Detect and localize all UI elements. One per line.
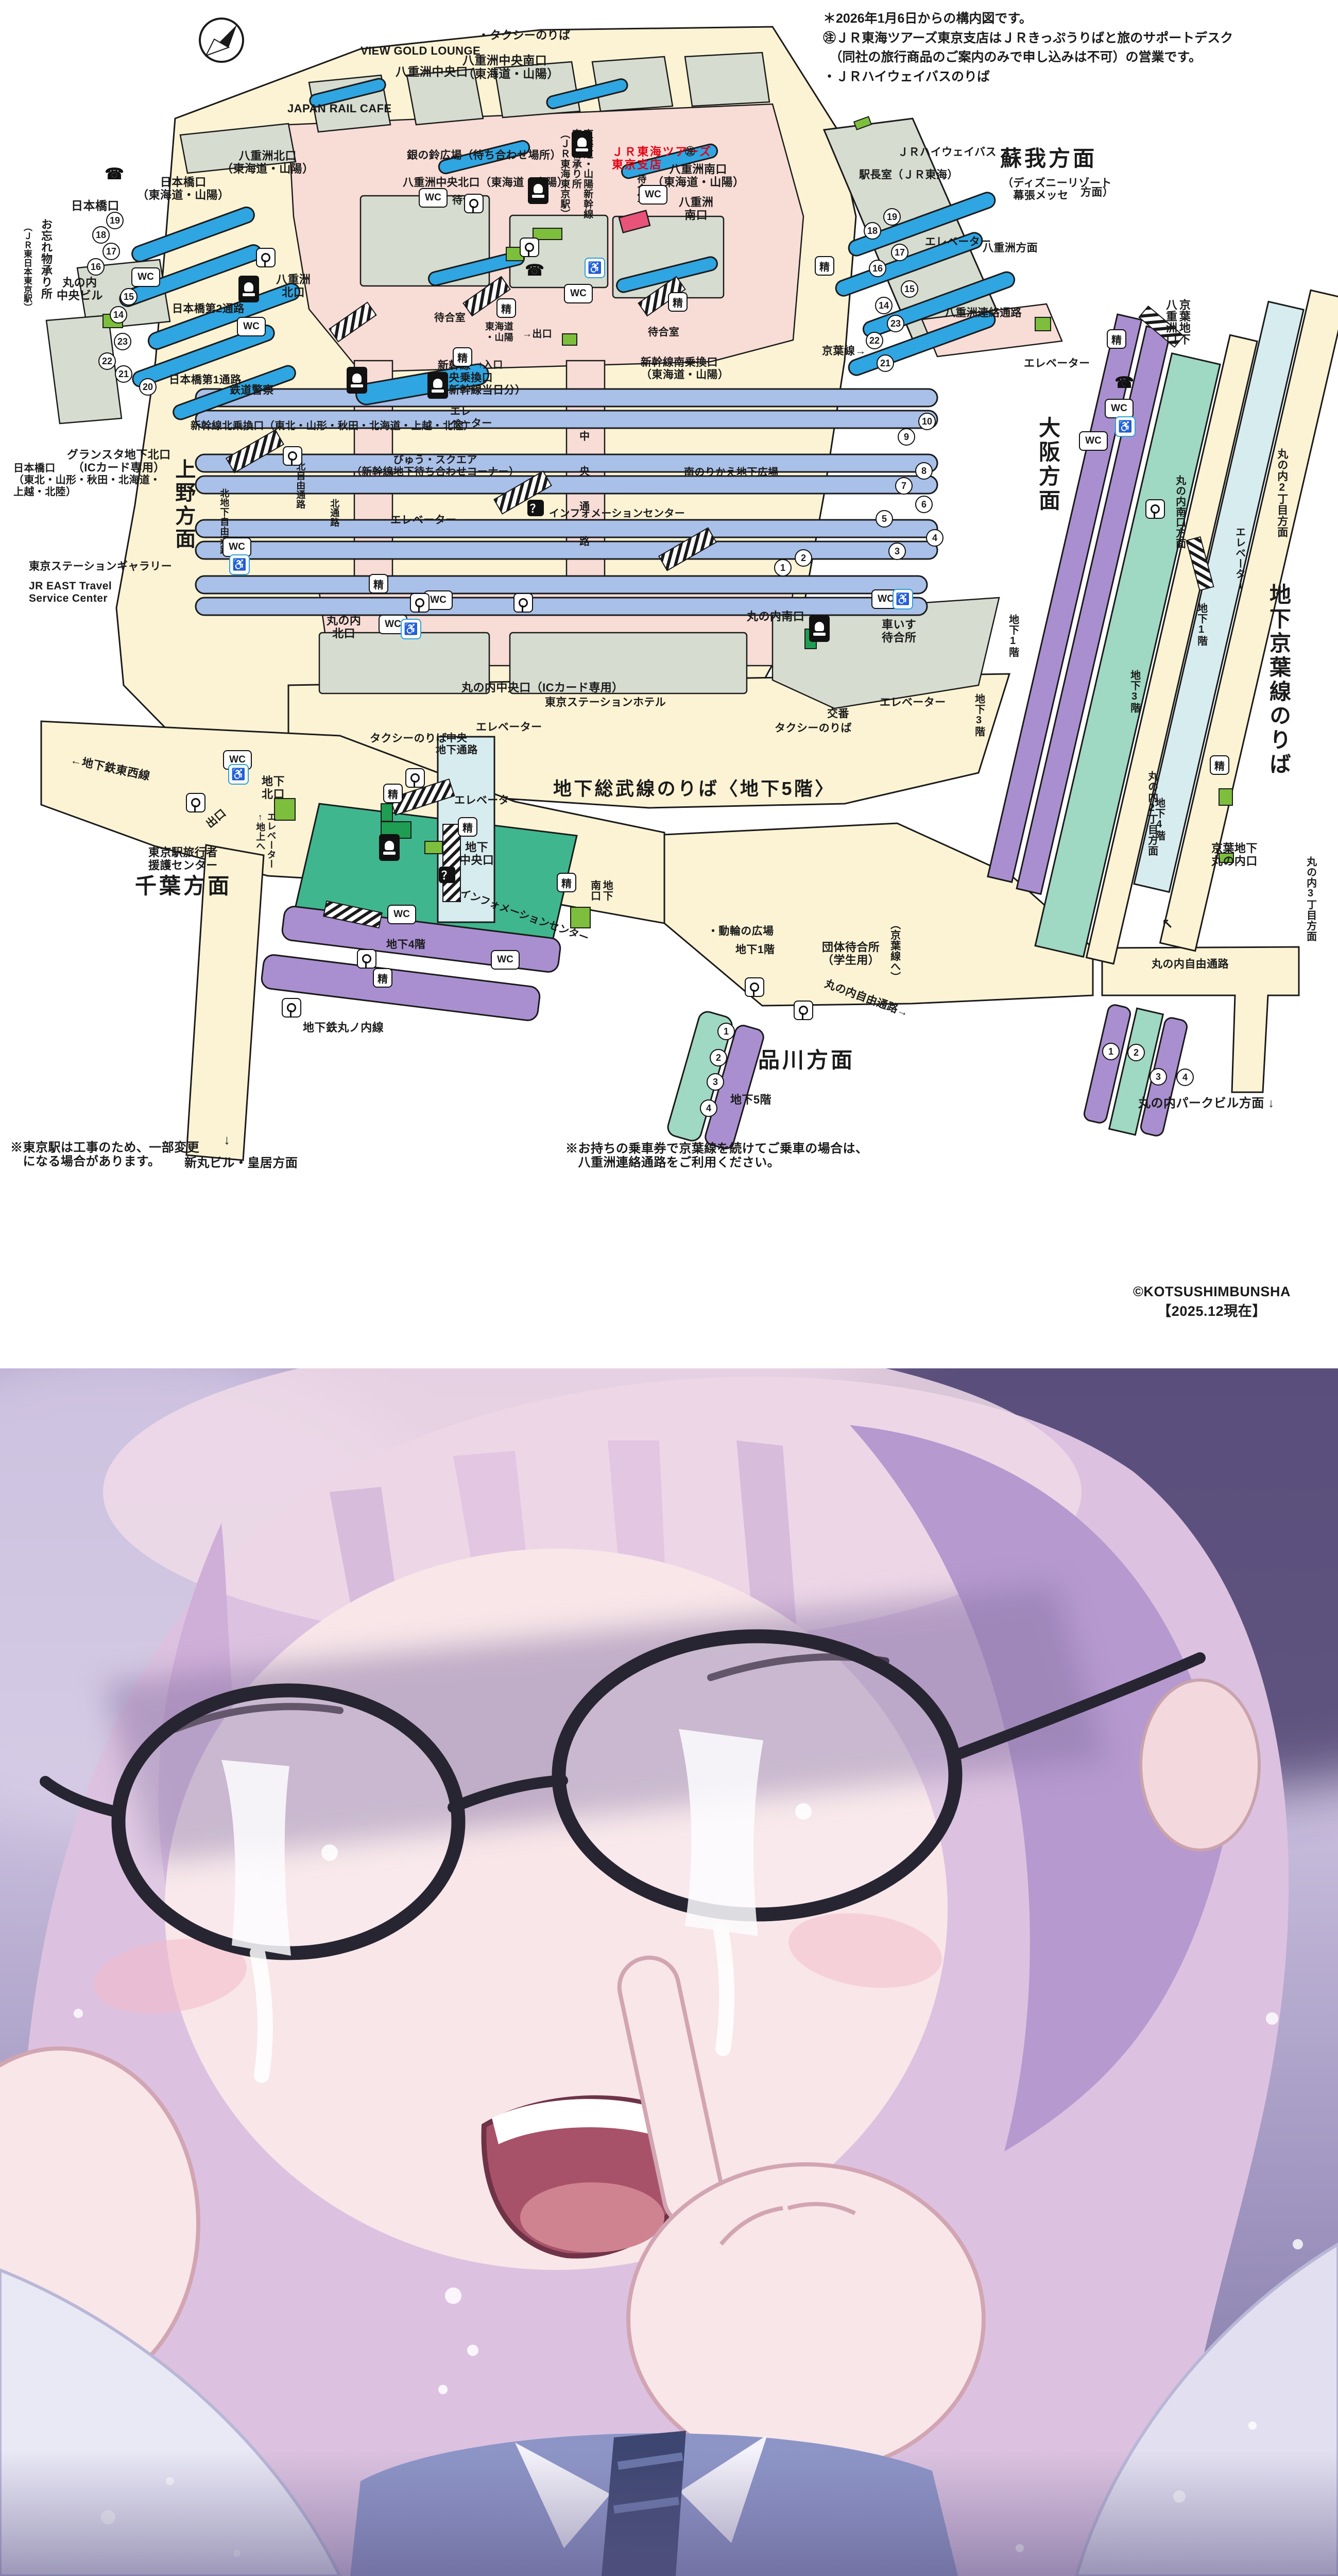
map-label: 新丸ビル・皇居方面 [184,1156,298,1170]
platform-number-badge: 7 [895,477,913,495]
map-label: 地下 南口 [588,880,612,901]
map-label: JAPAN RAIL CAFE [287,102,392,115]
map-label: 京葉線→ [822,345,866,358]
map-label: 丸の内南口方面 [1173,475,1186,549]
map-label: 地下 北口 [262,775,285,801]
map-label: インフォメーションセンター [549,508,685,520]
platform-number-badge: 2 [1127,1044,1145,1061]
map-label: 南のりかえ地下広場 [684,467,779,479]
copyright: ©KOTSUSHIMBUNSHA 【2025.12現在】 [1133,1284,1291,1320]
fare-adjustment-icon: 精 [458,817,477,837]
fare-adjustment-icon: 精 [383,784,403,803]
map-label: エレベーター [1024,358,1090,370]
wheelchair-icon: ♿ [228,764,249,785]
map-label: 丸の内中央口（ICカード専用） [461,681,624,694]
bottom-vignette [0,2450,1338,2576]
map-label: ←地下鉄東西線 [70,753,151,783]
map-label: 八重洲中央南口 （東海道・山陽） [462,54,559,80]
map-label: 八重洲 北口 [276,273,311,299]
map-label: びゅう・スクエア （新幹線地下待ち合わせコーナー） [351,454,519,478]
map-label: 千葉方面 [135,874,232,899]
tongue [520,2182,664,2252]
toilet-icon: WC [1079,431,1108,451]
map-label: エレベーター [925,236,991,248]
map-label: タクシーのりば [775,722,852,735]
fare-adjustment-icon: 精 [369,574,388,594]
toilet-icon: WC [419,188,448,208]
map-label: 丸の内 中央ビル [57,276,103,302]
map-label: ※東京駅は工事のため、一部変更 になる場合があります。 [10,1141,199,1169]
map-label: 新幹線北乗換口（東北・山形・秋田・北海道・上越・北陸） [191,420,474,432]
information-icon: ？ [439,867,455,883]
platform-number-badge: 1 [1102,1043,1120,1060]
map-label: 丸の内南口 [747,610,804,623]
coin-locker-icon [357,949,376,969]
platform-number-badge: 2 [795,549,812,567]
map-label: 地下総武線のりば〈地下5階〉 [553,778,836,799]
map-label: ※お持ちの乗車券で京葉線を続けてご乗車の場合は、 八重洲連絡通路をご利用ください… [565,1142,868,1170]
fare-adjustment-icon: 精 [1107,329,1126,349]
map-label: 方面） [1080,187,1113,199]
map-label: エレベーター [390,514,457,527]
platform-number-badge: 21 [115,365,132,383]
platform-number-badge: 23 [887,315,904,332]
map-label: 日本橋口 （東北・山形・秋田・北海道・ 上越・北陸） [13,463,161,498]
map-label: 丸の内3丁目方面 [1304,856,1316,941]
platform-number-badge: 21 [877,354,894,372]
map-label: 地下4階 [386,939,425,951]
coin-locker-icon [256,248,276,267]
map-label: 地下1階 [735,944,775,956]
map-label: エレベーター [476,721,542,734]
coin-locker-icon [745,977,764,997]
tokyo-station-map: VIEW GOLD LOUNGE八重洲中央口・タクシーのりば八重洲中央南口 （東… [0,0,1338,1370]
map-label: お忘れ物承り所 [39,218,53,299]
coin-locker-icon [410,593,430,613]
platform-number-badge: 3 [707,1073,724,1091]
platform-number-badge: 15 [120,288,138,306]
screenshot-canvas: ＊2026年1月6日からの構内図です。 ㊟ＪＲ東海ツアーズ東京支店はＪＲきっぷう… [0,0,1338,2576]
map-label: エレベーター [880,697,946,709]
map-label: エレベーター ↑地上へ [254,812,276,869]
map-label: 鉄道警察 [230,384,274,397]
map-label: 新幹線南乗換口 （東海道・山陽） [641,357,729,381]
ear [1141,1680,1259,1850]
map-label-layer: VIEW GOLD LOUNGE八重洲中央口・タクシーのりば八重洲中央南口 （東… [0,0,1338,1370]
platform-number-badge: 5 [876,510,893,528]
coin-locker-icon [282,998,301,1018]
platform-number-badge: 1 [717,1023,735,1040]
map-label: 京葉地下 八重洲口 [1164,299,1191,345]
map-label: 丸の内2丁目方面 [1145,771,1158,856]
platform-number-badge: 14 [875,297,893,314]
map-label: 北通路 [329,499,339,527]
map-label: 地下5階 [730,1093,771,1106]
toilet-icon: WC [237,317,266,336]
platform-number-badge: 16 [87,258,105,276]
map-label: 東海道 ・山陽 [485,321,513,343]
map-label: エレベーター [1233,527,1245,589]
platform-number-badge: 19 [106,212,124,229]
map-label: 日本橋第2通路 [172,303,245,315]
toilet-icon: WC [491,950,520,970]
map-label: 丸の内自由通路 [1152,958,1229,971]
map-label: 八重洲 南口 [679,196,713,222]
coin-locker-icon [1145,499,1165,519]
fare-adjustment-icon: 精 [557,873,576,892]
wheelchair-icon: ♿ [893,589,913,609]
map-label: （ＪＲ東日本東京駅） [22,223,32,312]
coin-locker-icon [186,793,205,812]
map-label: 団体待合所 （学生用） [822,941,880,967]
toilet-icon: WC [564,284,593,303]
coin-locker-icon [520,238,539,257]
map-label: 丸の内 北口 [327,614,361,640]
platform-number-badge: 9 [898,428,915,446]
crying-girl-illustration [0,1368,1338,2576]
map-label: 中央 地下通路 [436,733,478,756]
map-label: 地下京葉線のりば [1266,583,1292,777]
coin-locker-icon [794,1001,813,1020]
midori-no-madoguchi-icon [572,131,592,158]
platform-number-badge: 18 [92,226,110,244]
fare-adjustment-icon: 精 [1210,755,1229,775]
platform-number-badge: 14 [110,306,127,324]
platform-number-badge: 8 [915,462,933,480]
platform-number-badge: 17 [891,244,908,261]
map-label: 地下1階 [1006,614,1019,657]
midori-no-madoguchi-icon [379,834,400,861]
map-label: ・動輪の広場 [708,925,774,938]
midori-no-madoguchi-icon [427,372,448,399]
midori-no-madoguchi-icon [528,177,548,204]
map-label: 交番 [827,708,849,720]
platform-number-badge: 15 [901,280,918,298]
right-fist [628,2164,984,2473]
map-label: 待合室 [434,312,466,324]
platform-number-badge: 10 [918,413,936,430]
toilet-icon: WC [131,267,160,287]
fare-adjustment-icon: 精 [496,298,516,318]
wheelchair-icon: ♿ [401,619,421,639]
midori-no-madoguchi-icon [238,276,259,302]
map-label: JR EAST Travel Service Center [29,580,112,605]
map-label: 地下3階 [1128,670,1140,713]
information-icon: ？ [527,500,544,516]
map-label: 中央通路 [577,431,589,571]
telephone-icon: ☎ [105,165,124,183]
coin-locker-icon [283,446,302,466]
map-label: 大阪方面 [1035,416,1061,513]
map-label: 八重洲方面 [983,242,1038,255]
midori-no-madoguchi-icon [809,615,830,642]
coin-locker-icon [464,194,484,213]
copyright-holder: ©KOTSUSHIMBUNSHA [1133,1284,1291,1300]
platform-number-badge: 20 [139,378,157,396]
map-label: 東京ステーションホテル [545,697,666,709]
platform-number-badge: 22 [98,352,116,370]
map-label: 蘇我方面 [1000,146,1097,171]
map-label: エレ ベーター [450,406,492,430]
map-label: 丸の内パークビル方面 ↓ [1138,1096,1274,1110]
fare-adjustment-icon: 精 [373,968,392,988]
platform-number-badge: 3 [1150,1068,1167,1086]
toilet-icon: WC [639,185,667,205]
toilet-icon: WC [1105,399,1134,418]
coin-locker-icon [405,768,425,788]
map-label: 待合室 [648,327,679,338]
map-label: ＪＲハイウェイバス [898,146,997,159]
map-label: →出口 [522,329,552,340]
map-label: ↖ [1162,916,1173,931]
platform-number-badge: 1 [774,559,792,577]
map-label: 地下3階 [972,693,985,737]
copyright-date: 【2025.12現在】 [1133,1300,1291,1320]
map-label: 八重洲南口 （東海道・山陽） [652,163,745,189]
platform-number-badge: 2 [710,1049,727,1066]
map-label: 駅長室（ＪＲ東海） [859,169,958,181]
fare-adjustment-icon: 精 [453,347,472,367]
platform-number-badge: 18 [864,222,881,240]
platform-number-badge: 3 [888,543,906,560]
map-label: 丸の内自由通路→ [823,978,910,1020]
map-label: 丸の内2丁目方面 [1275,448,1288,537]
fare-adjustment-icon: 精 [668,292,688,312]
map-label: 東京駅旅行者 援護センター [148,846,218,872]
platform-number-badge: 4 [700,1099,717,1117]
map-label: 上野方面 [171,459,195,551]
map-label: エレベーター [454,794,521,807]
map-label: 北自由通路 [295,462,305,509]
platform-number-badge: 16 [869,260,886,277]
wheelchair-icon: ♿ [1115,416,1136,437]
map-label: 品川方面 [758,1048,855,1073]
map-label: 地下 中央口 [459,841,494,867]
platform-number-badge: 4 [926,529,944,547]
telephone-icon: ☎ [1114,374,1134,392]
map-label: ・タクシーのりば [478,29,571,42]
map-label: 日本橋口 [71,199,119,212]
toilet-icon: WC [387,905,416,924]
fare-adjustment-icon: 精 [815,256,834,276]
platform-number-badge: 4 [1176,1069,1194,1086]
map-label: インフォメーションセンター [458,887,590,945]
map-label: 出口 [204,807,229,831]
midori-no-madoguchi-icon [347,367,367,394]
wheelchair-icon: ♿ [585,258,605,278]
map-label: 地下1階 [1195,603,1207,646]
map-label: 八重洲連絡通路 [945,307,1022,319]
wheelchair-icon: ♿ [229,554,250,575]
map-label: 日本橋口 （東海道・山陽） [137,176,230,201]
platform-number-badge: 17 [102,243,120,260]
platform-number-badge: 23 [114,333,131,350]
map-label: ↓ [224,1132,231,1148]
map-label: ㊟ [685,146,695,158]
map-label: 銀の鈴広場（待ち合わせ場所） [407,149,561,162]
map-label: 地下鉄丸ノ内線 [303,1021,384,1034]
coin-locker-icon [513,593,533,613]
map-label: 八重洲北口 （東海道・山陽） [221,149,314,175]
map-label: （京葉線へ） [888,919,900,982]
telephone-icon: ☎ [525,262,544,280]
map-label: 東京ステーションギャラリー [29,561,172,573]
platform-number-badge: 6 [915,496,933,513]
map-label: 車いす 待合所 [882,618,916,644]
platform-number-badge: 19 [883,208,901,226]
platform-number-badge: 22 [866,332,883,349]
map-label: 京葉地下 丸の内口 [1211,842,1258,868]
map-label: 八重洲中央口 [396,65,468,78]
map-label: ↑入口 [478,360,503,371]
